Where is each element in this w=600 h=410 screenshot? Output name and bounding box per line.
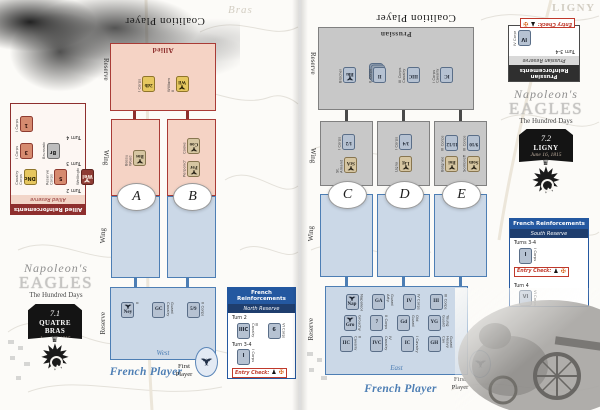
counter-coo[interactable]: CooCooke	[183, 138, 201, 154]
counter-side-label: IV Corps	[513, 31, 517, 47]
counter-side-label: Grouchy	[358, 315, 362, 331]
wing-letter-a: A	[132, 189, 141, 205]
counter-side-label: II Cavalry	[354, 336, 362, 353]
panel-title: French Reinforcements	[228, 288, 295, 304]
counter-side-label: II Corps	[384, 315, 388, 329]
scenario-number: 7.1	[28, 309, 82, 319]
counter-label: IC	[444, 73, 450, 79]
counter-side-label: I Corps	[338, 137, 342, 150]
side-label-reserve-french-left: Reserve	[100, 312, 107, 335]
counter-label: DNc	[24, 175, 35, 181]
counter-label: I	[525, 253, 527, 259]
counter-iv[interactable]: IVIV Corps	[403, 294, 421, 310]
cross-icon: ✠	[561, 269, 566, 275]
counter-side-label: I Corps	[137, 79, 141, 92]
logo-title: EAGLES	[6, 274, 106, 291]
counter-label: Som	[469, 158, 478, 164]
counter-side-label: Guard Arty.	[386, 294, 394, 311]
counter-side-label: I Corps	[15, 119, 19, 132]
counter-label: 7	[376, 320, 379, 326]
prussian-reserve-zone: BluBlücherIIII CorpsIIICIII Corps Cavalr…	[318, 27, 474, 110]
counter-label: 3	[25, 148, 28, 154]
counter-gro[interactable]: GroGrouchy	[344, 315, 362, 331]
counter-label: IC	[405, 341, 411, 347]
counter-label: IV	[407, 299, 413, 305]
counter-ga[interactable]: GAGuard Arty.	[372, 294, 394, 311]
counter-side-label: Wellington	[76, 169, 80, 186]
counter-label: IIIC	[239, 328, 248, 334]
counter-label: Coo	[190, 140, 199, 146]
allied-reserve-zone: 2dbI CorpsWilWilliam II Allied	[110, 43, 216, 111]
connector	[402, 110, 405, 121]
logo-title: EAGLES	[496, 100, 596, 117]
reinforcement-group: Turn 2 DNcCavalry Corps5Reserve CorpsWel…	[15, 169, 81, 193]
counter-11-12[interactable]: 11/12III Corps	[441, 135, 459, 151]
counter-label: Blu	[346, 70, 354, 76]
counter-gc[interactable]: GCGuard Cavalry	[152, 302, 174, 319]
counter-side-label: IV Corps	[417, 294, 421, 310]
cross-icon: ✠	[523, 21, 528, 27]
eagle-icon	[402, 165, 410, 171]
counter-side-label: VI Corps	[282, 323, 286, 339]
counter-2db[interactable]: 2dbI Corps	[137, 76, 155, 92]
counter-i[interactable]: II Corps	[519, 248, 537, 264]
eagle-icon	[178, 84, 186, 90]
counter-iiic[interactable]: IIICIII Corps Cavalry	[398, 67, 420, 84]
connector	[402, 277, 405, 286]
eagle-icon	[190, 146, 198, 152]
counter-side-label: IV Cavalry	[384, 336, 392, 353]
counter-side-label: III Corps	[441, 136, 445, 152]
allied-zone-label: Allied	[111, 44, 215, 57]
counter-3[interactable]: 3I Corps	[15, 143, 33, 159]
counter-side-label: I Cavalry	[415, 336, 419, 353]
eagle-icon	[136, 158, 144, 164]
turn-label: Turn 3	[15, 161, 81, 166]
counter-label: Wil	[178, 78, 186, 84]
counter-6[interactable]: 6VI Corps	[268, 323, 286, 339]
napoleons-eagles-logo: Napoleon's EAGLES The Hundred Days	[496, 88, 596, 125]
wing-oval-a: A	[117, 183, 156, 211]
soldier-icon: ♟	[271, 370, 276, 376]
side-label-reserve-french-right: Reserve	[308, 318, 315, 341]
counter-side-label: III Corps	[444, 294, 448, 310]
wing-oval-b: B	[173, 183, 212, 211]
napoleons-eagles-logo: Napoleon's EAGLES The Hundred Days	[6, 262, 106, 299]
counter-label: 1/2	[346, 139, 352, 145]
counter-label: StA	[347, 159, 355, 165]
panel-title: Prussian Reinforcements	[509, 65, 579, 81]
entry-check-label: Entry Check:	[235, 371, 269, 376]
reinforcement-group: Turn 4 1I Corps	[15, 117, 81, 140]
counter-label: Wel	[82, 172, 92, 178]
counter-side-label: Bossu Wood	[125, 149, 133, 166]
counter-ic[interactable]: ICI Corps Cavalry	[432, 67, 454, 84]
eagle-icon	[470, 164, 478, 170]
medal-icon: ♛ ✹	[36, 341, 74, 383]
side-label-wing-french-left: Wing	[100, 228, 107, 243]
counter-label: Gd	[400, 320, 407, 326]
counter-side-label: II Corps	[201, 302, 205, 316]
counter-9-10[interactable]: 9/10III Corps	[463, 135, 481, 151]
turn-label: Turn 2	[232, 316, 291, 321]
counter-label: II	[378, 73, 382, 79]
counter-side-label: Guard Cavalry	[166, 302, 174, 319]
counter-side-label: III Corps	[463, 136, 467, 152]
counter-label: GC	[155, 307, 163, 313]
wing-box-e: 11/12III Corps9/10III Corps BoiBoignéeSo…	[434, 121, 487, 186]
panel-title: French Reinforcements	[510, 219, 588, 229]
prussian-reinforcements-panel: Prussian Reinforcements Prussian Reserve…	[508, 25, 580, 82]
eagle-icon	[347, 165, 355, 171]
counter-br[interactable]: BrBrunswick	[42, 142, 60, 159]
counter-iic[interactable]: IICII Cavalry	[340, 336, 362, 353]
counter-som[interactable]: SomSombreffe	[463, 155, 481, 172]
counter-iiic[interactable]: IIICIII Cavalry	[237, 323, 259, 340]
counter-side-label: Reserve Corps	[46, 169, 54, 186]
french-reserve-zone-right: NapNapoleonGAGuard Arty.IVIV CorpsIIIIII…	[325, 286, 468, 375]
counter-1-2[interactable]: 1/2I Corps	[338, 134, 356, 150]
connector	[459, 110, 462, 121]
counter-side-label: III Cavalry	[251, 323, 259, 340]
side-label-wing-french-right: Wing	[308, 226, 315, 241]
logo-subtitle: The Hundred Days	[6, 291, 106, 299]
soldier-icon: ♟	[530, 21, 535, 27]
counter-3-4[interactable]: 3/4I Corps	[395, 135, 413, 151]
wing-letter-b: B	[188, 189, 197, 205]
connector	[459, 277, 462, 286]
counter-side-label: II Corps	[368, 69, 372, 83]
map-place-label-right: LIGNY	[552, 2, 596, 14]
counter-label: Nap	[348, 302, 357, 308]
turn-label: Turns 3-4	[514, 241, 584, 246]
panel-subtitle: South Reserve	[510, 229, 588, 238]
scenario-number: 7.2	[519, 134, 573, 144]
entry-check: Entry Check: ♟ ✠	[514, 267, 569, 277]
panel-subtitle: North Reserve	[228, 304, 295, 313]
counter-wel[interactable]: WelWellington	[76, 169, 94, 186]
counter-label: YG	[431, 320, 439, 326]
counter-side-label: Young Guard	[442, 315, 450, 332]
page-fold	[292, 0, 308, 410]
turn-label: Turn 3-4	[232, 343, 291, 348]
eagle-icon	[200, 357, 213, 367]
counter-label: 2db	[145, 81, 153, 87]
counter-per[interactable]: PerPerponcher	[183, 160, 201, 177]
counter-gh[interactable]: GHGuard Heavy Cav	[428, 336, 453, 353]
scenario-name: QUATRE BRAS	[28, 319, 82, 337]
cross-icon: ✠	[279, 370, 284, 376]
medal-icon: ♛ ✹	[527, 164, 565, 206]
counter-label: Ney	[124, 310, 132, 316]
counter-label: IIIC	[409, 73, 418, 79]
eagle-icon	[346, 76, 354, 82]
entry-check: Entry Check: ♟ ✠	[232, 368, 287, 378]
counter-label: 11/12	[446, 140, 457, 146]
counter-ney[interactable]: NeyII	[121, 302, 139, 318]
reinforcement-group: Turn 3-4 IVIV Corps	[513, 31, 575, 54]
counter-ivc[interactable]: IVCIV Cavalry	[370, 336, 392, 353]
counter-side-label: Blücher	[339, 69, 343, 83]
counter-yg[interactable]: YGYoung Guard	[428, 315, 450, 332]
side-label-reserve-coalition-left: Reserve	[102, 58, 109, 81]
connector	[186, 278, 189, 287]
scenario-ribbon-71: 7.1 QUATRE BRAS June 16, 1815	[28, 304, 82, 339]
panel-subtitle: Prussian Reserve	[509, 56, 579, 65]
counter-boi[interactable]: BoiBoignée	[441, 156, 459, 172]
panel-title: Allied Reinforcements	[11, 204, 85, 214]
direction-label-east: East	[326, 364, 467, 372]
counter-wil[interactable]: WilWilliam II	[167, 75, 189, 92]
counter-label: IVC	[372, 341, 381, 347]
counter-side-label: I Corps	[15, 146, 19, 159]
counter-side-label: I Corps Cavalry	[432, 67, 440, 84]
counter-side-label: I Corps	[395, 137, 399, 150]
counter-label: GH	[430, 341, 438, 347]
counter-label: 9/10	[469, 140, 478, 146]
counter-label: Br	[50, 148, 56, 154]
counter-label: 5	[59, 175, 62, 181]
counter-iv[interactable]: IVIV Corps	[513, 31, 531, 47]
counter-label: 5/9	[190, 307, 196, 313]
counter-label: GA	[375, 299, 383, 305]
counter-label: IIC	[343, 341, 351, 347]
connector	[134, 278, 137, 287]
counter-lig[interactable]: LigLigny	[395, 157, 413, 173]
counter-label: Boi	[448, 158, 455, 164]
counter-side-label: William II	[167, 75, 175, 92]
entry-check: Entry Check: ♟ ✠	[520, 19, 575, 29]
counter-side-label: Ligny	[395, 162, 399, 172]
counter-dnc[interactable]: DNcCavalry Corps	[15, 169, 37, 186]
counter-blu[interactable]: BluBlücher	[339, 68, 357, 84]
play-aid-spread: Bras Coalition Player Reserve Wing Wing …	[0, 0, 600, 410]
counter-i[interactable]: II Corps	[237, 349, 255, 365]
soldier-icon: ♟	[553, 269, 558, 275]
entry-check-label: Entry Check:	[517, 269, 551, 274]
counter-side-label: Guard Heavy Cav	[442, 336, 453, 353]
turn-label: Turn 4	[15, 134, 81, 139]
counter-ic[interactable]: ICI Cavalry	[401, 336, 419, 353]
counter-side-label: Napoleon	[360, 294, 364, 311]
counter-nap[interactable]: NapNapoleon	[346, 294, 364, 311]
wing-letter-c: C	[343, 187, 352, 203]
french-player-label-right: French Player	[348, 383, 453, 395]
coalition-player-label-left: Coalition Player	[95, 15, 235, 27]
counter-side-label: I Corps	[533, 248, 537, 261]
counter-label: 1	[25, 122, 28, 128]
wing-box-c: 1/2I Corps StASt. Amand	[320, 121, 373, 186]
counter-side-label: Cavalry Corps	[15, 169, 23, 186]
counter-5-9[interactable]: 5/9II Corps	[187, 302, 205, 318]
battle-photo-art	[455, 288, 600, 410]
reinforcement-group: Turn 3 3I CorpsBrBrunswick	[15, 142, 81, 166]
logo-subtitle: The Hundred Days	[496, 117, 596, 125]
counter-label: Gro	[346, 323, 355, 329]
wing-oval-e: E	[442, 181, 481, 209]
counter-side-label: Cooke	[183, 142, 187, 154]
panel-subtitle: Allied Reserve	[11, 195, 85, 204]
counter-gd[interactable]: GdOld Guard	[397, 315, 419, 332]
counter-side-label: I Corps	[251, 349, 255, 362]
entry-check-label: Entry Check:	[538, 21, 572, 26]
reinforcement-group: Turns 3-4 II Corps	[514, 241, 584, 264]
counter-ii[interactable]: IIII Corps	[368, 68, 386, 84]
counter-label: Bos	[136, 152, 144, 158]
counter-side-label: Boignée	[441, 157, 445, 172]
french-reinforcements-panel-north: French Reinforcements North Reserve Turn…	[227, 287, 296, 379]
counter-label: 6	[272, 328, 275, 334]
counter-side-label: Sombreffe	[463, 155, 467, 172]
counter-bos[interactable]: BosBossu Wood	[125, 149, 147, 166]
counter-5[interactable]: 5Reserve Corps	[46, 169, 68, 186]
counter-side-label: II	[135, 302, 139, 304]
side-label-reserve-coalition-right: Reserve	[309, 52, 316, 75]
counter-label: IV	[521, 36, 527, 42]
eagle-icon	[190, 169, 198, 175]
wing-oval-d: D	[385, 181, 424, 209]
counter-7[interactable]: 7II Corps	[370, 315, 388, 331]
wing-letter-e: E	[457, 187, 466, 203]
counter-side-label: Old Guard	[411, 315, 419, 332]
eagle-icon	[448, 164, 456, 170]
counter-side-label: III Corps Cavalry	[398, 67, 406, 84]
counter-label: Per	[190, 163, 198, 169]
reinforcement-group: Turn 3-4 II Corps	[232, 343, 291, 366]
turn-label: Turn 3-4	[513, 48, 575, 53]
side-label-wing-coalition-right: Wing	[309, 148, 316, 163]
counter-1[interactable]: 1I Corps	[15, 117, 33, 133]
counter-iii[interactable]: IIIIII Corps	[430, 294, 448, 310]
coalition-player-label-right: Coalition Player	[346, 12, 486, 24]
allied-reinforcements-panel: Allied Reinforcements Allied Reserve Tur…	[10, 103, 86, 215]
reinforcement-group: Turn 2 IIICIII Cavalry6VI Corps	[232, 316, 291, 340]
counter-side-label: Perponcher	[183, 160, 187, 177]
first-player-label-left: First Player	[170, 363, 198, 379]
turn-label: Turn 2	[15, 187, 81, 192]
first-player-eagle-badge	[195, 347, 218, 377]
counter-label: 3/4	[403, 140, 409, 146]
counter-side-label: St. Amand	[336, 156, 344, 173]
counter-label: Lig	[402, 159, 409, 165]
wing-oval-c: C	[328, 181, 367, 209]
wing-letter-d: D	[399, 187, 409, 203]
counter-label: I	[243, 354, 245, 360]
counter-side-label: Brunswick	[42, 142, 46, 159]
connector	[345, 277, 348, 286]
wing-box-d: 3/4I Corps LigLigny	[377, 121, 430, 186]
counter-label: III	[433, 299, 439, 305]
prussian-zone-label: Prussian	[319, 28, 473, 41]
side-label-wing-coalition-left: Wing	[102, 150, 109, 165]
scenario-name: LIGNY	[519, 144, 573, 153]
counter-sta[interactable]: StASt. Amand	[336, 156, 358, 173]
connector	[345, 110, 348, 121]
